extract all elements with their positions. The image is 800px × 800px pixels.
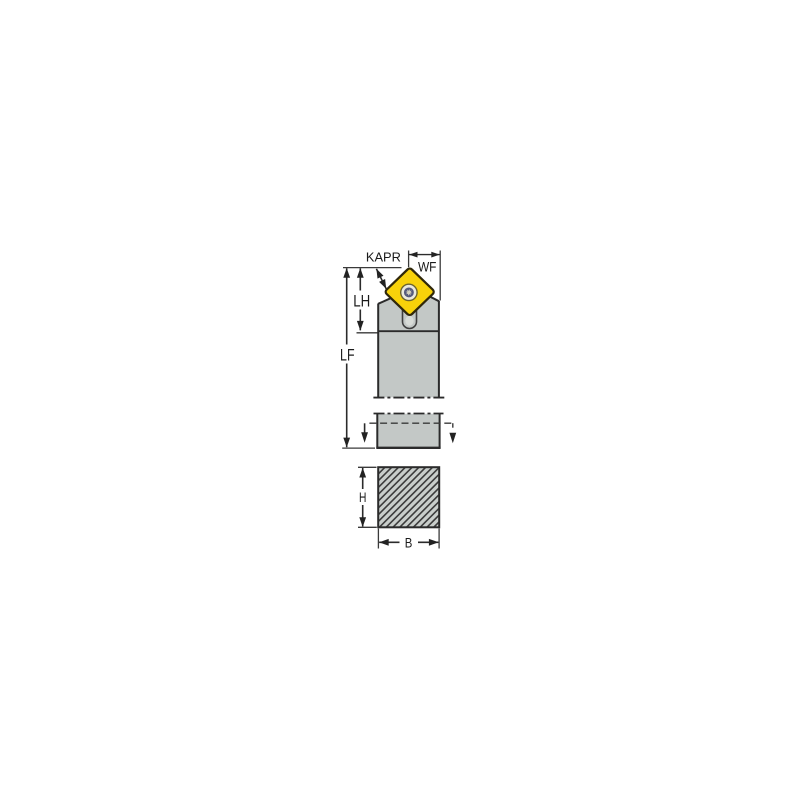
svg-text:WF: WF <box>418 258 437 274</box>
svg-text:H: H <box>359 489 366 505</box>
svg-text:LF: LF <box>340 345 355 364</box>
svg-text:B: B <box>405 534 413 550</box>
svg-text:KAPR: KAPR <box>366 250 401 265</box>
svg-text:LH: LH <box>353 292 370 311</box>
